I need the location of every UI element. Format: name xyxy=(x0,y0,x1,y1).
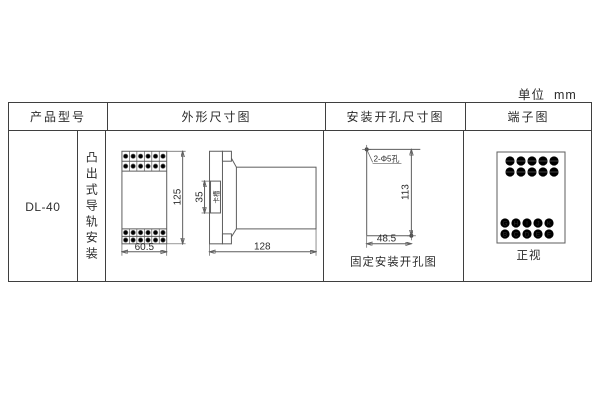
header-terminal-diagram: 端子图 xyxy=(466,103,591,130)
hole-note-label: 2-Φ5孔 xyxy=(374,154,400,163)
spec-table: 产品型号 外形尺寸图 安装开孔尺寸图 端子图 DL-40 凸出式导轨安装 xyxy=(8,102,592,282)
hole-drawing-cell: 2-Φ5孔 113 48.5 固定安装开孔图 xyxy=(324,131,464,282)
dim-label-48-5: 48.5 xyxy=(377,234,397,245)
terminal-caption: 正视 xyxy=(517,248,542,262)
front-view xyxy=(122,151,167,244)
slot-label: 卡槽 xyxy=(211,190,220,203)
terminal-drawing-cell: G H I J K B C D E F 正视 xyxy=(464,131,591,282)
terminal-body-outline xyxy=(497,152,565,243)
terminal-labels-row2: B C D E F xyxy=(500,229,553,238)
terminal-F: F xyxy=(547,231,551,238)
dim-label-60-5: 60.5 xyxy=(135,242,155,253)
hole-note: 2-Φ5孔 xyxy=(367,150,401,163)
terminal-diagram: G H I J K B C D E F 正视 xyxy=(464,131,591,282)
dim-label-35: 35 xyxy=(195,191,206,203)
terminal-E: E xyxy=(536,231,541,238)
outline-drawing-cell: 60.5 125 卡槽 xyxy=(106,131,324,282)
header-outline-dimensions: 外形尺寸图 xyxy=(108,103,326,130)
terminal-K: K xyxy=(547,220,552,227)
side-view: 卡槽 xyxy=(210,151,317,244)
dim-depth: 128 xyxy=(210,229,317,256)
product-model-cell: DL-40 xyxy=(9,131,78,282)
terminal-J: J xyxy=(536,220,539,227)
header-mounting-holes: 安装开孔尺寸图 xyxy=(326,103,466,130)
terminal-screws-top xyxy=(505,156,558,176)
dim-slot-height: 35 xyxy=(195,181,211,213)
dim-label-125: 125 xyxy=(173,188,184,205)
mounting-type-label: 凸出式导轨安装 xyxy=(85,151,97,263)
table-header-row: 产品型号 外形尺寸图 安装开孔尺寸图 端子图 xyxy=(9,103,591,131)
side-view-body xyxy=(236,167,316,229)
terminal-D: D xyxy=(525,231,530,238)
mounting-hole-drawing: 2-Φ5孔 113 48.5 固定安装开孔图 xyxy=(324,131,463,282)
terminal-C: C xyxy=(514,231,519,238)
terminal-G: G xyxy=(502,220,507,227)
mounting-type-cell: 凸出式导轨安装 xyxy=(78,131,106,282)
unit-label: 单位 mm xyxy=(518,84,590,100)
hole-drawing-caption: 固定安装开孔图 xyxy=(350,255,437,269)
terminal-I: I xyxy=(526,220,528,227)
datasheet-page: 单位 mm 产品型号 外形尺寸图 安装开孔尺寸图 端子图 DL-40 凸出式导轨… xyxy=(0,0,600,400)
dim-height: 125 xyxy=(167,151,186,244)
table-body-row: DL-40 凸出式导轨安装 xyxy=(9,131,591,282)
terminal-B: B xyxy=(503,231,507,238)
dim-label-128: 128 xyxy=(254,241,271,252)
dim-label-113: 113 xyxy=(400,184,411,200)
terminal-labels-row1: G H I J K xyxy=(500,218,553,227)
header-product-model: 产品型号 xyxy=(9,103,108,130)
terminal-H: H xyxy=(514,220,519,227)
outline-drawing: 60.5 125 卡槽 xyxy=(106,131,323,282)
